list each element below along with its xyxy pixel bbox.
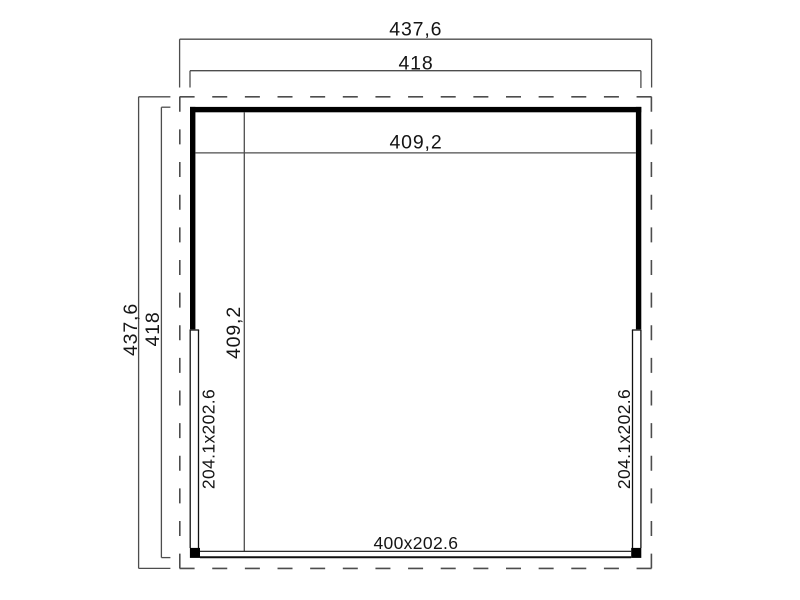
svg-text:400x202.6: 400x202.6 bbox=[373, 533, 458, 553]
svg-text:409,2: 409,2 bbox=[223, 306, 245, 359]
svg-text:437,6: 437,6 bbox=[389, 19, 442, 41]
svg-text:204.1x202.6: 204.1x202.6 bbox=[614, 389, 634, 489]
svg-text:418: 418 bbox=[142, 311, 164, 346]
svg-text:418: 418 bbox=[398, 52, 433, 74]
svg-text:204.1x202.6: 204.1x202.6 bbox=[199, 389, 219, 489]
svg-text:409,2: 409,2 bbox=[389, 132, 442, 154]
svg-text:437,6: 437,6 bbox=[120, 303, 142, 356]
